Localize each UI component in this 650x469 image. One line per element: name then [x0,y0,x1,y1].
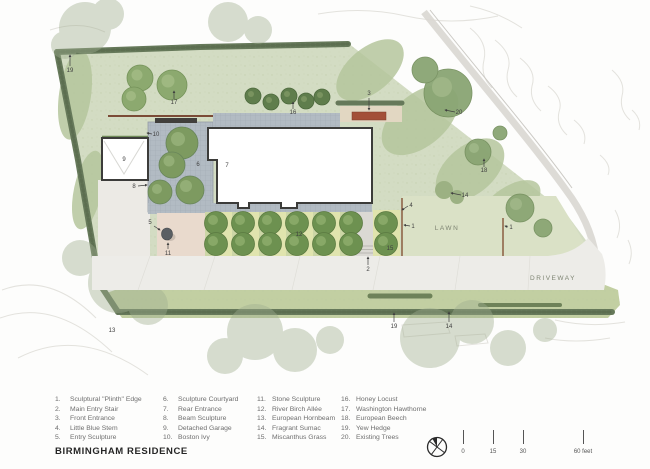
legend-item: 16.Honey Locust [341,395,630,405]
plan-callout-19: 19 [391,324,398,330]
plan-callout-14: 14 [462,193,469,199]
scale-tick [493,430,494,444]
plan-callout-13: 13 [109,328,116,334]
legend-item: 9.Detached Garage [163,424,257,434]
area-label-lawn: LAWN [435,225,460,232]
page-title: BIRMINGHAM RESIDENCE [55,446,188,457]
scale-bar: 0153060 feet [463,430,623,460]
legend-item: 14.Fragrant Sumac [257,424,341,434]
lawn-area [402,196,584,256]
scale-label: 0 [461,449,464,455]
legend-item: 12.River Birch Allée [257,405,341,415]
legend-item: 13.European Hornbeam [257,414,341,424]
legend-item: 10.Boston Ivy [163,433,257,443]
plan-callout-11: 11 [165,251,172,257]
legend-item: 18.European Beech [341,414,630,424]
plan-callout-16: 16 [290,110,297,116]
legend-item: 8.Beam Sculpture [163,414,257,424]
north-terrace-paving [213,113,340,128]
legend-column-1: 1.Sculptural "Plinth" Edge2.Main Entry S… [55,395,163,443]
north-arrow-icon [424,434,450,460]
legend-item: 3.Front Entrance [55,414,163,424]
scale-tick [523,430,524,444]
legend-item: 4.Little Blue Stem [55,424,163,434]
legend-item: 1.Sculptural "Plinth" Edge [55,395,163,405]
plan-callout-20: 20 [456,110,463,116]
scale-label: 15 [490,449,497,455]
plan-callout-17: 17 [171,100,178,106]
legend-column-2: 6.Sculpture Courtyard7.Rear Entrance8.Be… [163,395,257,443]
scale-tick [463,430,464,444]
front-entrance-marker [352,112,386,120]
plan-callout-14: 14 [446,324,453,330]
legend-item: 17.Washington Hawthorne [341,405,630,415]
legend-item: 2.Main Entry Stair [55,405,163,415]
legend-column-3: 11.Stone Sculpture12.River Birch Allée13… [257,395,341,443]
plan-callout-18: 18 [481,168,488,174]
legend-item: 5.Entry Sculpture [55,433,163,443]
plan-callout-19: 19 [67,68,74,74]
legend-item: 15.Miscanthus Grass [257,433,341,443]
beam-sculpture [155,118,197,123]
house-footprint [208,128,372,208]
legend-item: 11.Stone Sculpture [257,395,341,405]
area-label-driveway: DRIVEWAY [530,275,576,282]
scale-label: 60 feet [574,449,592,455]
legend-item: 6.Sculpture Courtyard [163,395,257,405]
plan-callout-15: 15 [387,246,394,252]
scale-label: 30 [520,449,527,455]
plan-callout-10: 10 [153,132,160,138]
site-plan-sheet: 191716320181410986751121241511191413LAWN… [0,0,650,469]
scale-tick [583,430,584,444]
legend-item: 7.Rear Entrance [163,405,257,415]
plan-callout-12: 12 [296,232,303,238]
garage-apron [98,180,150,256]
